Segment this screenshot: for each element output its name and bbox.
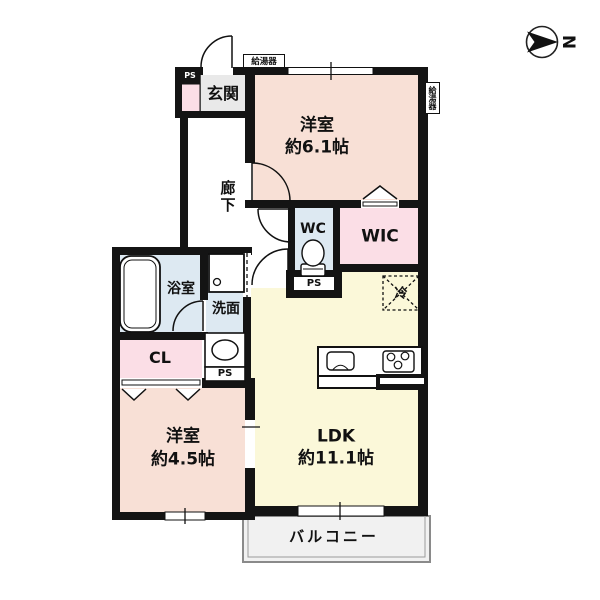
compass-north-arrow: N — [527, 27, 579, 58]
kitchen-counter — [318, 347, 428, 390]
room-fills — [118, 73, 420, 514]
wc-label: WC — [300, 222, 326, 236]
floorplan-drawing: N — [0, 0, 600, 600]
toilet — [301, 240, 325, 276]
hallway-label: 廊下 — [220, 180, 235, 214]
bedroom1-label: 洋室 — [300, 118, 334, 135]
closet-label: CL — [149, 350, 171, 366]
bedroom2-size: 約4.5帖 — [151, 452, 215, 469]
entry-side-box — [181, 84, 200, 114]
compass-north-label: N — [558, 35, 578, 49]
balcony-label: バルコニー — [289, 530, 379, 545]
fridge-label: 冷 — [394, 288, 407, 301]
bathtub — [120, 256, 160, 332]
ps-entry-label: PS — [184, 72, 196, 80]
bathroom-label: 浴室 — [167, 282, 195, 296]
wc-door-arc — [258, 209, 291, 242]
washing-machine — [209, 254, 244, 292]
stove-burners — [383, 351, 414, 372]
water-heater-right-label: 給湯器 — [425, 82, 440, 114]
washroom-door-arc — [252, 249, 288, 285]
ldk-label: LDK — [317, 429, 355, 446]
ldk-size: 約11.1帖 — [298, 451, 374, 468]
floorplan-canvas: N 玄関 廊下 洋室 約6.1帖 WC WIC 浴室 洗面 CL 洋室 約4.5… — [0, 0, 600, 600]
water-heater-top-label: 給湯器 — [243, 54, 285, 68]
ps-wc-label: PS — [307, 279, 322, 289]
wic-label: WIC — [361, 229, 399, 246]
ps-wash-label: PS — [218, 369, 233, 379]
entry-door-arc — [201, 36, 232, 68]
kitchen-sink — [327, 352, 354, 370]
washroom-label: 洗面 — [212, 302, 240, 316]
bedroom2-label: 洋室 — [166, 429, 200, 446]
bedroom1-size: 約6.1帖 — [285, 140, 349, 157]
genkan-label: 玄関 — [207, 86, 239, 102]
